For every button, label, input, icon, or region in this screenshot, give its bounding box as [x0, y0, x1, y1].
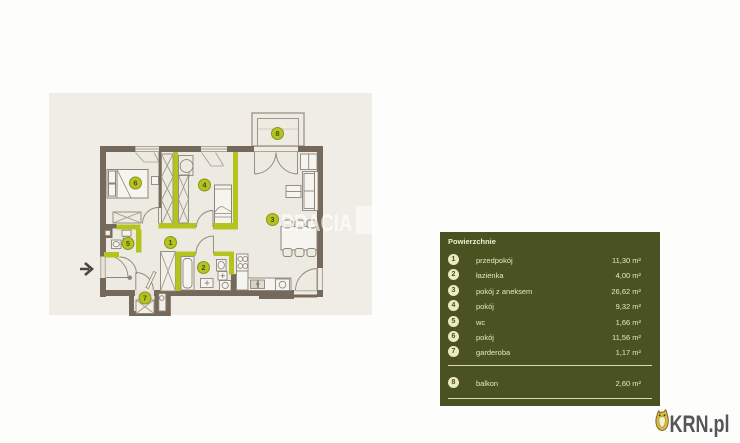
- svg-text:1: 1: [168, 238, 172, 247]
- svg-text:7: 7: [143, 294, 147, 303]
- svg-text:3: 3: [270, 215, 274, 224]
- svg-text:KRN.pl: KRN.pl: [670, 411, 730, 438]
- svg-text:5: 5: [126, 239, 130, 248]
- svg-text:6: 6: [133, 179, 137, 188]
- svg-text:8: 8: [275, 129, 279, 138]
- svg-text:BRACIA: BRACIA: [281, 210, 352, 237]
- svg-text:2: 2: [201, 263, 205, 272]
